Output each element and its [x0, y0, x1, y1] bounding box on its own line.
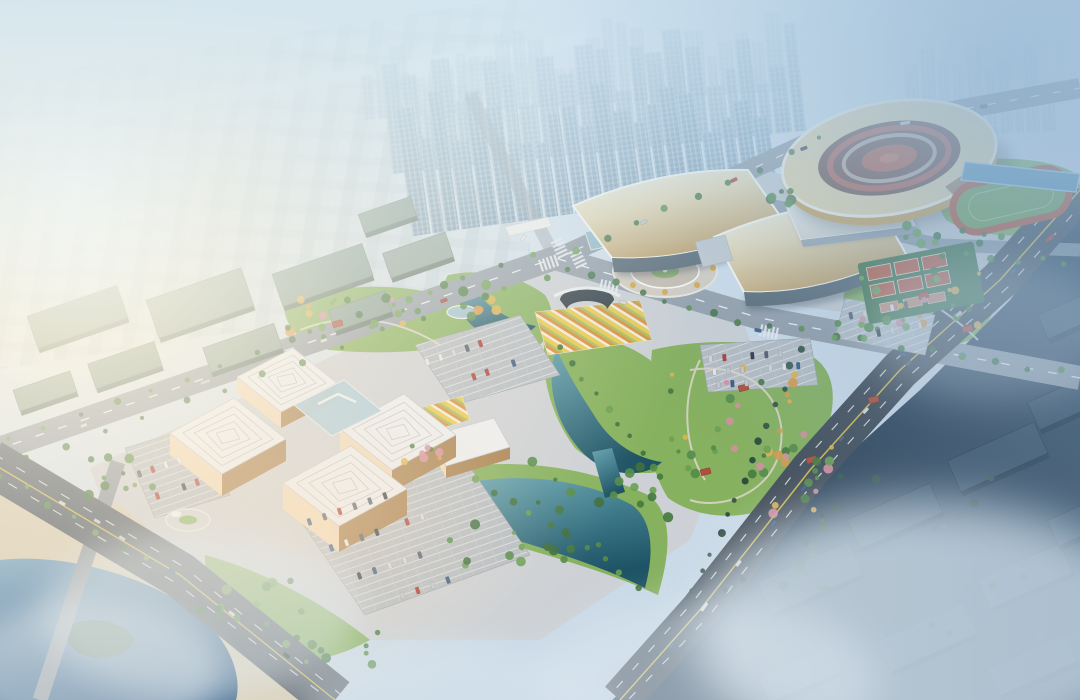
tree — [421, 316, 426, 321]
tree — [731, 445, 738, 452]
tree — [772, 502, 779, 509]
tree — [566, 488, 575, 497]
tree — [685, 465, 691, 471]
tree — [777, 428, 782, 433]
tree — [735, 403, 741, 409]
car — [980, 104, 987, 108]
tree — [428, 290, 433, 295]
tree — [662, 299, 667, 304]
tree — [788, 378, 798, 388]
tree — [606, 406, 613, 413]
tree — [786, 362, 794, 370]
tree — [460, 302, 467, 309]
tree — [787, 188, 793, 194]
car — [796, 362, 800, 369]
tree — [707, 553, 711, 557]
tree — [491, 305, 501, 315]
office-block — [27, 285, 130, 353]
tree — [711, 445, 716, 450]
tree — [773, 450, 783, 460]
tree — [579, 377, 584, 382]
tree — [569, 360, 575, 366]
tree — [458, 286, 468, 296]
tree — [784, 199, 792, 207]
tree — [460, 275, 465, 280]
tree — [676, 449, 680, 453]
tree — [726, 394, 735, 403]
car — [730, 380, 734, 387]
tree — [724, 380, 729, 385]
tree — [634, 220, 639, 225]
tree — [299, 359, 306, 366]
tree — [259, 370, 266, 377]
tree — [635, 462, 645, 472]
tree — [610, 491, 618, 499]
tree — [627, 434, 632, 439]
tree — [988, 475, 994, 481]
tree — [668, 388, 674, 394]
tree — [758, 379, 764, 385]
office-block — [146, 268, 255, 343]
tree — [732, 498, 737, 503]
tree — [370, 320, 378, 328]
tree — [981, 232, 986, 237]
tree — [756, 462, 764, 470]
tree — [964, 251, 969, 256]
tree — [557, 344, 563, 350]
tree — [565, 533, 571, 539]
tree — [834, 320, 841, 327]
tree — [683, 434, 688, 439]
tree — [718, 529, 726, 537]
tree — [1061, 261, 1066, 266]
tree — [594, 391, 598, 395]
tree — [825, 456, 834, 465]
tree — [615, 477, 624, 486]
tree — [913, 229, 922, 238]
tree — [789, 149, 795, 155]
tree — [405, 296, 413, 304]
tree — [754, 437, 762, 445]
tree — [285, 325, 291, 331]
tree — [813, 489, 818, 494]
tree — [255, 350, 260, 355]
tree — [837, 473, 843, 479]
tree — [630, 483, 638, 491]
tree — [307, 329, 312, 334]
tree — [789, 444, 798, 453]
tree — [330, 301, 335, 306]
tree — [380, 326, 385, 331]
tree — [812, 457, 821, 466]
tree — [916, 239, 926, 249]
tree — [394, 310, 402, 318]
tree — [725, 180, 731, 186]
tree — [572, 247, 580, 255]
tree — [779, 189, 784, 194]
tree — [661, 205, 668, 212]
aerial-rendering — [0, 0, 1080, 700]
tree — [616, 569, 622, 575]
tree — [815, 476, 819, 480]
car — [782, 363, 786, 370]
tree — [734, 319, 741, 326]
tree — [289, 336, 296, 343]
tree — [959, 228, 965, 234]
tree — [603, 556, 608, 561]
tree — [782, 386, 787, 391]
tree — [585, 545, 591, 551]
tree — [553, 478, 557, 482]
tree — [817, 136, 821, 140]
tree — [414, 308, 421, 315]
tree — [641, 451, 646, 456]
tree — [6, 436, 10, 440]
tree — [498, 263, 503, 268]
tree — [872, 474, 881, 483]
car — [750, 352, 754, 359]
tree — [640, 289, 646, 295]
tree — [340, 346, 344, 350]
tree — [933, 232, 941, 240]
tree — [768, 508, 778, 518]
tree — [742, 477, 749, 484]
tree — [79, 412, 84, 417]
tree — [787, 399, 791, 403]
tree — [767, 193, 776, 202]
car — [778, 350, 782, 357]
office-block — [383, 232, 455, 283]
tree — [715, 426, 721, 432]
tree — [594, 497, 604, 507]
tree — [319, 312, 327, 320]
tree — [800, 494, 809, 503]
car — [768, 364, 772, 371]
tree — [763, 445, 771, 453]
tree — [811, 507, 817, 513]
tree — [690, 469, 700, 479]
tree — [749, 457, 755, 463]
tree — [798, 326, 804, 332]
tree — [185, 377, 190, 382]
tree — [939, 253, 945, 259]
tree — [657, 473, 663, 479]
office-block — [358, 197, 418, 239]
tree — [782, 453, 789, 460]
tree — [791, 371, 798, 378]
car — [744, 379, 748, 386]
tree — [612, 278, 619, 285]
tree — [637, 501, 644, 508]
tree — [544, 274, 551, 281]
tree — [748, 470, 757, 479]
tree — [482, 293, 490, 301]
tree — [41, 426, 46, 431]
tree — [812, 468, 818, 474]
car — [708, 355, 712, 362]
tree — [829, 445, 834, 450]
tree — [689, 588, 696, 595]
tree — [25, 484, 30, 489]
tree — [635, 585, 641, 591]
tree — [1040, 256, 1045, 261]
tree — [148, 388, 152, 392]
tree — [481, 280, 491, 290]
tree — [588, 271, 596, 279]
tree — [800, 431, 807, 438]
tree — [767, 323, 773, 329]
tree — [391, 303, 396, 308]
tree — [596, 542, 601, 547]
tree — [530, 252, 536, 258]
car — [722, 354, 726, 361]
tree — [218, 364, 222, 368]
tree — [23, 455, 28, 460]
tree — [467, 312, 476, 321]
tree — [670, 372, 674, 376]
tree — [390, 297, 395, 302]
tree — [648, 492, 657, 501]
tree — [798, 346, 805, 353]
office-block — [13, 371, 79, 416]
tree — [400, 320, 406, 326]
tree — [381, 293, 390, 302]
tree — [319, 323, 326, 330]
tree — [903, 234, 908, 239]
tree — [773, 402, 779, 408]
tree — [306, 304, 311, 309]
tree — [976, 239, 983, 246]
tree — [565, 267, 570, 272]
tree — [700, 568, 705, 573]
tree — [625, 468, 635, 478]
tree — [725, 512, 730, 517]
tree — [902, 221, 912, 231]
tree — [998, 233, 1005, 240]
tree — [650, 464, 658, 472]
car — [764, 351, 768, 358]
tree — [669, 436, 674, 441]
tree — [567, 544, 576, 553]
tree — [785, 392, 790, 397]
tree — [762, 453, 767, 458]
tree — [763, 423, 769, 429]
tree — [114, 398, 121, 405]
tree — [604, 235, 611, 242]
tree — [440, 281, 448, 289]
tree — [560, 556, 567, 563]
tree — [501, 286, 506, 291]
tree — [932, 239, 939, 246]
tree — [757, 167, 763, 173]
car — [716, 381, 720, 388]
tree — [615, 422, 620, 427]
tree — [297, 296, 305, 304]
tree — [726, 417, 734, 425]
tree — [355, 311, 362, 318]
tree — [710, 309, 718, 317]
tree — [62, 443, 70, 451]
tree — [663, 512, 673, 522]
tree — [695, 193, 702, 200]
car — [740, 366, 744, 373]
tree — [306, 310, 313, 317]
tree — [687, 450, 696, 459]
tree — [859, 276, 864, 281]
tree — [831, 335, 837, 341]
tree — [344, 297, 351, 304]
tree — [686, 305, 692, 311]
car — [726, 367, 730, 374]
car — [520, 234, 526, 242]
car — [712, 368, 716, 375]
